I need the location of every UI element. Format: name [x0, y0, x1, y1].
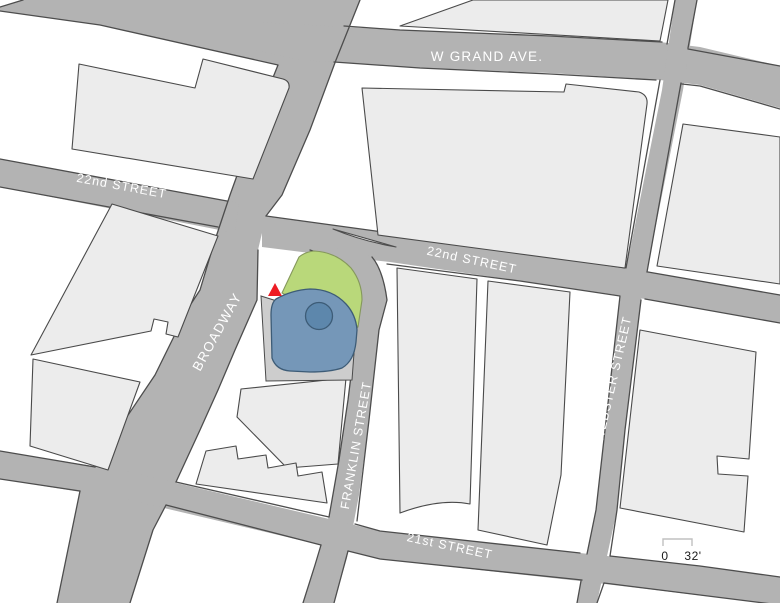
- site-building-footprint-blue: [271, 289, 357, 372]
- scale-start-value: 0: [661, 549, 668, 563]
- map-canvas: W GRAND AVE. 22nd STREET 22nd STREET BRO…: [0, 0, 780, 603]
- building-top-left-block: [72, 59, 289, 179]
- label-w-grand-ave: W GRAND AVE.: [431, 49, 543, 64]
- building-franklin-webster-slab-2: [478, 281, 570, 545]
- scale-bar: 0 32': [661, 539, 701, 563]
- project-site: [261, 251, 362, 381]
- site-marker-red-triangle-icon: [268, 283, 282, 296]
- building-east-webster-upper: [657, 124, 780, 284]
- building-east-webster-lower: [620, 330, 756, 532]
- building-south-of-site: [237, 378, 346, 468]
- scale-end-value: 32': [684, 549, 701, 563]
- site-plan-map: W GRAND AVE. 22nd STREET 22nd STREET BRO…: [0, 0, 780, 603]
- site-circular-feature: [306, 303, 333, 330]
- scale-bracket-icon: [663, 539, 692, 546]
- building-franklin-webster-slab-1: [397, 268, 477, 513]
